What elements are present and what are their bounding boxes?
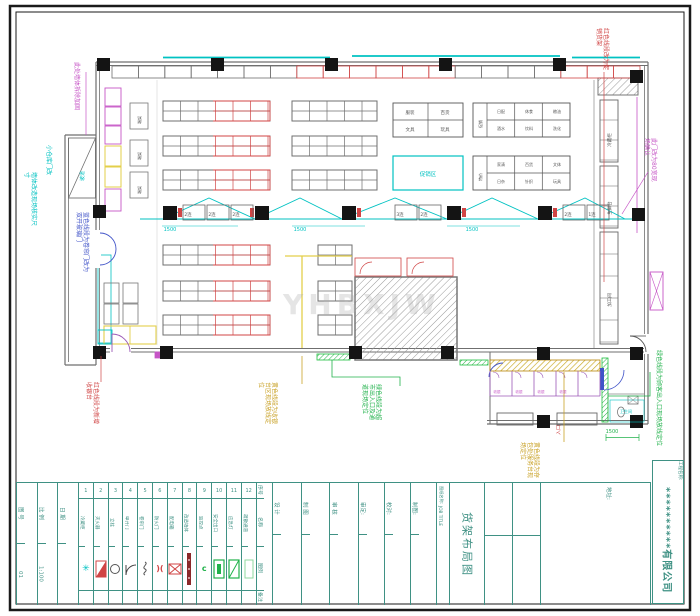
plan-label: 2连 — [208, 211, 216, 218]
legend-item-column: 7配电箱 — [168, 483, 183, 605]
approval-columns: 审定:校对:制图: — [358, 483, 436, 605]
checkout-arc — [493, 372, 499, 378]
door-arc — [100, 233, 116, 249]
plan-label: 入口 — [556, 425, 562, 435]
legend-item-number: 7 — [168, 483, 182, 499]
approval-column: 校对: — [385, 483, 411, 605]
column-marker — [537, 347, 550, 360]
plan-label: 1500 — [606, 429, 619, 435]
column-marker — [630, 347, 643, 360]
marker — [462, 208, 466, 217]
column-marker — [160, 346, 173, 359]
legend-item-number: 2 — [94, 483, 108, 499]
plan-label: 1500 — [164, 227, 177, 233]
legend-item-note — [123, 591, 137, 604]
legend-item-name: 灭火器 — [94, 499, 100, 547]
checkout-arc — [581, 372, 587, 378]
plan-label: 1500 — [466, 227, 479, 233]
plan-label: 玩具 — [441, 127, 450, 133]
column-marker — [93, 346, 106, 359]
plan-label: 收银 — [560, 389, 568, 394]
leader — [332, 360, 400, 386]
corridor-shelf — [600, 232, 618, 344]
plan-label: 2连 — [184, 211, 192, 218]
column-marker — [630, 415, 643, 428]
column-marker — [632, 208, 645, 221]
legend-symbol-circ — [109, 547, 123, 591]
legend-symbol-exit — [212, 547, 226, 591]
signature-column: 制 图 — [302, 483, 331, 605]
entrance-strip — [460, 360, 488, 365]
legend-item-name: 应急灯 — [227, 499, 233, 547]
wall-shelf-bay — [455, 66, 481, 78]
annotation-note: 绿色线段为超市出入口及通道现场定位 — [360, 384, 381, 420]
legend-symbol-coil — [138, 547, 152, 591]
column-marker — [630, 70, 643, 83]
plan-label: 粮油 — [553, 108, 561, 114]
legend-item-note — [79, 591, 93, 604]
signature-label: 制 图 — [302, 483, 310, 535]
plan-label: 服装 — [406, 109, 415, 116]
plan-label: 生鲜台 — [606, 201, 613, 215]
legend-item-column: 10安全出口 — [212, 483, 227, 605]
company-name: **********有限公司 — [661, 487, 676, 593]
legend-item-column: 8改造墙体 — [183, 483, 198, 605]
corridor-shelf — [600, 100, 618, 162]
info-label: 日 期 — [58, 483, 66, 544]
fixture-box — [105, 167, 121, 187]
plan-label: 文体 — [553, 161, 561, 167]
plan-label: 促销区 — [420, 170, 437, 178]
legend-item-name: 防火门 — [153, 499, 159, 547]
annotation-note: 黄色线段为收银台区现场放线定位 — [256, 382, 277, 426]
info-column: 日 期 — [58, 483, 79, 605]
job-title-label: JOB TITLE — [438, 506, 443, 526]
legend-item-number: 9 — [197, 483, 211, 499]
annotation-note: 墙体改造现场核实尺寸 — [22, 172, 36, 230]
fixture-box — [105, 189, 121, 211]
plan-label: 促销 — [477, 120, 483, 128]
drawing-title-cell: 图纸名称: JOB TITLE 货架布局图 — [436, 483, 484, 605]
legend-item-number: 11 — [227, 483, 241, 499]
plan-label: 加工间 — [606, 293, 613, 307]
annotation-note: 小仓库门改 — [44, 145, 51, 175]
plan-label: 端架 — [136, 186, 142, 194]
plan-rect — [110, 347, 131, 354]
door-leaf — [600, 368, 604, 390]
wall-shelf-bay — [508, 66, 534, 78]
legend-item-name: 卷帘门 — [138, 499, 144, 547]
legend-item-number: 3 — [109, 483, 123, 499]
endcap-shelf — [130, 103, 148, 129]
fixture-box — [104, 304, 119, 324]
plan-label: 冷藏柜 — [606, 133, 613, 147]
signature-label: 审 核 — [330, 483, 338, 535]
approval-column: 制图: — [411, 483, 437, 605]
plan-label: 3连 — [396, 211, 404, 218]
wall-shelf-bay — [297, 66, 323, 78]
info-label: 比 例 — [38, 483, 46, 544]
legend-header-column: 序号名称图例备注 — [257, 483, 273, 605]
project-name-label: 工程名称: — [677, 461, 683, 481]
wall-shelf-bay — [165, 66, 191, 78]
legend-symbol-snow: ✳ — [79, 547, 93, 591]
aisle-black-unit — [255, 206, 269, 220]
legend-item-name: 改造墙体 — [183, 499, 189, 547]
legend-item-column: 2灭火器 — [94, 483, 109, 605]
wall-shelf-bay — [112, 66, 138, 78]
legend-symbol-pass — [242, 547, 256, 591]
annotation-note: 红色线段改为促销货架 — [594, 28, 608, 74]
legend-header: 备注 — [257, 591, 264, 604]
aisle-black-unit — [538, 206, 552, 220]
plan-label: 洗化 — [553, 125, 561, 131]
annotation-note: 绿色线段为顾客出入口现场放线定位 — [654, 350, 661, 446]
plan-label: 日配 — [497, 109, 505, 114]
legend-item-name: 立柱 — [109, 499, 115, 547]
fixture-box — [123, 283, 138, 303]
wall-shelf-bay — [402, 66, 428, 78]
legend-item-name: 单开门 — [123, 499, 129, 547]
wall-shelf-bay — [138, 66, 164, 78]
plan-label: 端架 — [136, 152, 142, 160]
info-table: 图 号01比 例1:100日 期 — [16, 483, 78, 605]
wall-shelf-bay — [350, 66, 376, 78]
column-marker — [537, 415, 550, 428]
door-arc — [412, 262, 424, 274]
column-marker — [97, 58, 110, 71]
checkout-arc — [515, 372, 521, 378]
legend-item-number: 8 — [183, 483, 197, 499]
plan-label: 2连 — [232, 211, 240, 218]
plan-label: 坡道 — [79, 171, 86, 181]
wall-shelf-bay — [270, 66, 296, 78]
approval-label: 校对: — [385, 483, 393, 535]
entrance-strip — [317, 354, 350, 360]
legend-item-note — [168, 591, 182, 604]
legend-symbol-tri — [94, 547, 108, 591]
legend-item-note — [197, 591, 211, 604]
plan-label: 2连 — [564, 211, 572, 218]
wall-shelf-bay — [482, 66, 508, 78]
legend-item-number: 5 — [138, 483, 152, 499]
plan-label: 收银 — [494, 389, 502, 394]
leader — [608, 372, 650, 396]
legend-table: 1冷藏柜✳2灭火器3立柱4单开门5卷帘门6防火门)(7配电箱8改造墙体9监控点c… — [78, 483, 272, 605]
annotation-note: 此门改为80宽现场确认 — [642, 138, 656, 186]
legend-item-column: 12疏散通道 — [242, 483, 257, 605]
column-marker — [553, 58, 566, 71]
legend-item-name: 冷藏柜 — [79, 499, 85, 547]
ramp-slope — [69, 138, 96, 198]
plan-label: 收银 — [516, 389, 524, 394]
fixture-box — [105, 126, 121, 144]
legend-item-note — [153, 591, 167, 604]
checkout-counter-strip — [490, 360, 600, 371]
signature-columns: 设 计制 图审 核 — [272, 483, 358, 605]
info-column: 比 例1:100 — [38, 483, 59, 605]
marker — [178, 208, 182, 217]
legend-item-column: 9监控点c — [197, 483, 212, 605]
legend-header: 序号 — [257, 483, 264, 499]
legend-item-note — [183, 591, 197, 604]
cad-sheet: 15001500150015002连2连2连3连2连2连1连服装百货文具玩具日配… — [0, 0, 700, 616]
column-marker — [93, 205, 106, 218]
legend-item-number: 12 — [242, 483, 256, 499]
info-label: 图 号 — [17, 483, 25, 544]
legend-symbol-boxx — [168, 547, 182, 591]
approval-label: 制图: — [411, 483, 419, 535]
address-label: 地址: — [605, 487, 613, 500]
column-marker — [325, 58, 338, 71]
legend-item-name: 配电箱 — [168, 499, 174, 547]
legend-symbol-bar — [183, 547, 197, 591]
signature-column: 审 核 — [330, 483, 359, 605]
marker — [357, 208, 361, 217]
legend-header: 名称 — [257, 499, 264, 547]
legend-symbol-fire: )( — [153, 547, 167, 591]
plan-label: 针织 — [525, 178, 533, 184]
annotation-note: 红色线段为新增收银台 — [84, 382, 98, 426]
info-value: 1:100 — [38, 544, 44, 604]
fixture-box — [123, 304, 138, 324]
column-marker — [349, 346, 362, 359]
plan-label: 玩具 — [553, 178, 561, 184]
aisle-black-unit — [163, 206, 177, 220]
legend-item-note — [109, 591, 123, 604]
plan-label: 酒水 — [497, 125, 505, 131]
plan-rect — [644, 334, 652, 354]
bench — [497, 413, 533, 425]
legend-item-note — [227, 591, 241, 604]
bench — [557, 413, 597, 425]
info-column: 图 号01 — [17, 483, 38, 605]
fixture-box — [105, 107, 121, 125]
fixture-box — [98, 330, 112, 344]
title-block: 图 号01比 例1:100日 期 1冷藏柜✳2灭火器3立柱4单开门5卷帘门6防火… — [16, 482, 651, 605]
revision-cell — [484, 483, 540, 605]
legend-item-column: 1冷藏柜✳ — [79, 483, 94, 605]
plan-label: 百货 — [525, 161, 533, 167]
column-marker — [441, 346, 454, 359]
legend-item-note — [242, 591, 256, 604]
legend-item-column: 3立柱 — [109, 483, 124, 605]
legend-symbol-cam: c — [197, 547, 211, 591]
plan-rect — [93, 230, 101, 268]
signature-label: 设 计 — [273, 483, 281, 535]
marker — [553, 208, 557, 217]
legend-item-name: 疏散通道 — [242, 499, 248, 547]
plan-label: 特价 — [477, 173, 483, 181]
drawing-title: 货架布局图 — [460, 512, 476, 577]
legend-item-column: 6防火门)( — [153, 483, 168, 605]
plan-label: 1500 — [294, 227, 307, 233]
annotation-note: 黄色线段为存包处服务台现场定位 — [518, 442, 539, 480]
drawing-name-label: 图纸名称: — [438, 486, 444, 504]
plan-label: 休食 — [525, 108, 533, 114]
plan-label: 收银 — [538, 389, 546, 394]
wall-shelf-bay — [376, 66, 402, 78]
legend-item-note — [94, 591, 108, 604]
legend-item-note — [212, 591, 226, 604]
door-arc — [100, 249, 116, 265]
approval-column: 审定: — [359, 483, 385, 605]
legend-symbol-lamp — [227, 547, 241, 591]
aisle-black-unit — [447, 206, 461, 220]
fixture-box — [105, 88, 121, 106]
wall-shelf-bay — [244, 66, 270, 78]
plan-label: 百货 — [441, 109, 450, 116]
plan-label: 端架 — [136, 116, 142, 124]
legend-item-number: 1 — [79, 483, 93, 499]
legend-symbol-door — [123, 547, 137, 591]
aisle-black-unit — [342, 206, 356, 220]
plan-label: 家清 — [497, 161, 505, 167]
plan-label: 1连 — [588, 211, 596, 218]
legend-item-name: 安全出口 — [212, 499, 218, 547]
legend-item-number: 6 — [153, 483, 167, 499]
legend-item-name: 监控点 — [197, 499, 203, 547]
checkout-arc — [537, 372, 543, 378]
plan-label: 2连 — [420, 211, 428, 218]
column-marker — [439, 58, 452, 71]
legend-header: 图例 — [257, 547, 264, 591]
legend-item-number: 4 — [123, 483, 137, 499]
legend-item-number: 10 — [212, 483, 226, 499]
info-value: 01 — [17, 544, 23, 604]
legend-item-column: 5卷帘门 — [138, 483, 153, 605]
plan-label: 卫生间 — [620, 408, 632, 414]
company-title-strip: 工程名称: **********有限公司 — [652, 460, 684, 604]
address-cell: 地址: — [540, 483, 650, 605]
door-arc — [360, 262, 372, 274]
fixture-box — [104, 283, 119, 303]
fixture-box — [105, 146, 121, 166]
signature-column: 设 计 — [273, 483, 302, 605]
approval-label: 审定: — [359, 483, 367, 535]
annotation-note: 此处墙体拆除加固 — [72, 62, 79, 110]
plan-label: 饮料 — [525, 125, 533, 131]
annotation-note: 蓝色线段为卷帘门改为双开玻璃门 — [74, 212, 88, 272]
legend-item-column: 4单开门 — [123, 483, 138, 605]
legend-item-column: 11应急灯 — [227, 483, 242, 605]
legend-item-note — [138, 591, 152, 604]
plan-label: 日杂 — [497, 178, 505, 184]
column-marker — [211, 58, 224, 71]
watermark-text: YHBXJW — [283, 288, 441, 321]
plan-label: 文具 — [406, 126, 415, 133]
